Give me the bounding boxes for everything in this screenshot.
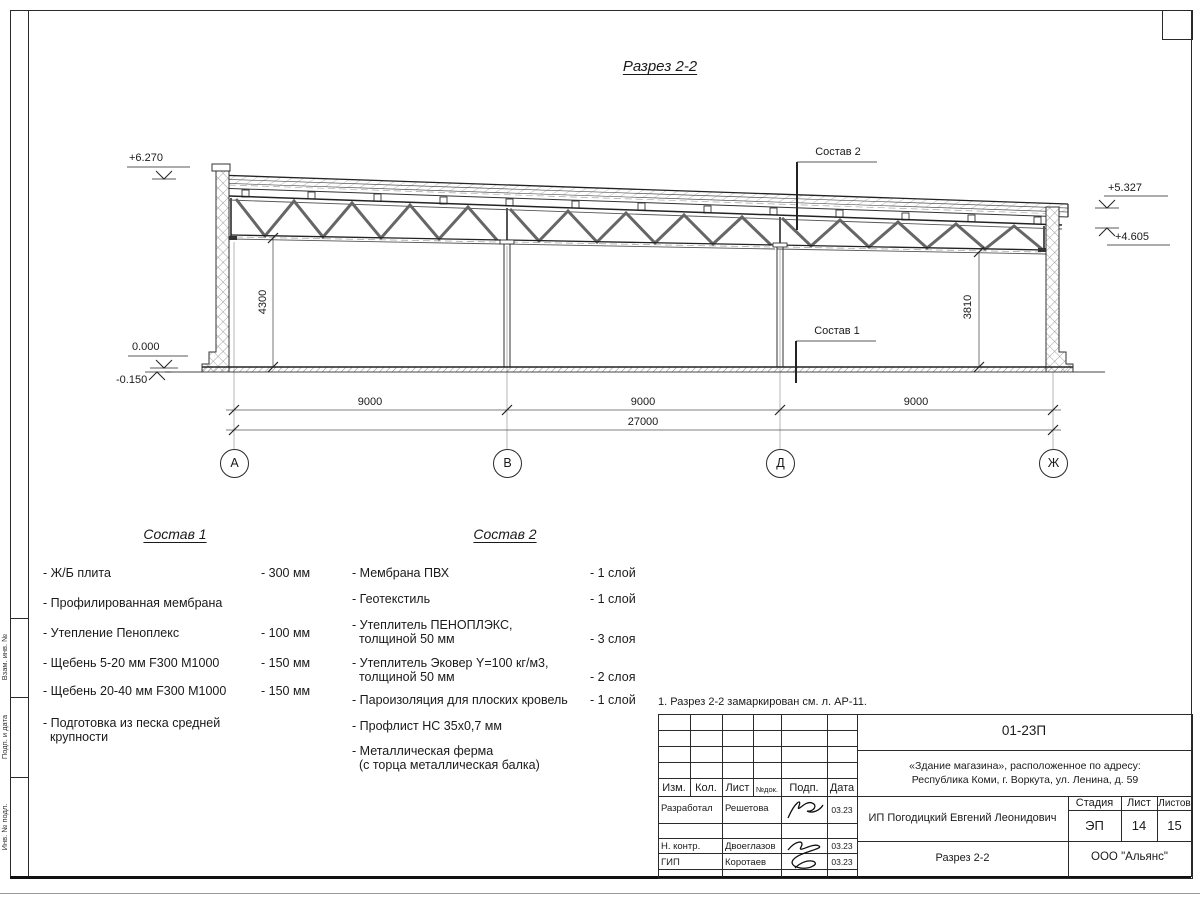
axis-bubble-d: Д xyxy=(766,449,795,478)
tb-object: «Здание магазина», расположенное по адре… xyxy=(862,759,1188,787)
tb-client: ИП Погодицкий Евгений Леонидович xyxy=(859,812,1066,824)
side-label-podp: Подп. и дата xyxy=(0,702,12,772)
frame-left-inner xyxy=(28,10,29,877)
tb-line xyxy=(658,853,857,854)
floor-slab xyxy=(165,367,1105,372)
tb-drawing-name: Разрез 2-2 xyxy=(857,852,1068,864)
side-label-inv: Инв. № подл. xyxy=(0,792,12,862)
sostav1-list: - Ж/Б плита - 300 мм - Профилированная м… xyxy=(43,566,321,744)
side-label-vzam: Взам. инв. № xyxy=(0,622,12,692)
tb-line xyxy=(1068,810,1191,811)
elevation-top-left: +6.270 xyxy=(129,152,189,166)
tb-sheets-label: Листов xyxy=(1157,798,1192,809)
axis-bubble-a: А xyxy=(220,449,249,478)
dim-span-2: 9000 xyxy=(613,396,673,410)
tb-line xyxy=(857,750,1191,751)
tb-line xyxy=(658,746,857,747)
dim-total: 27000 xyxy=(613,416,673,430)
sostav1-heading: Состав 1 xyxy=(120,526,230,544)
dim-span-1: 9000 xyxy=(340,396,400,410)
leader-label-sostav2: Состав 2 xyxy=(799,146,877,160)
list-item: - Щебень 20-40 мм F300 М1000 - 150 мм xyxy=(43,684,321,698)
side-divider xyxy=(10,618,28,619)
tb-header-izm: Изм. xyxy=(658,782,690,794)
tb-stage-label: Стадия xyxy=(1068,797,1121,809)
list-item: - Мембрана ПВХ - 1 слой xyxy=(352,566,650,580)
side-divider xyxy=(10,697,28,698)
elevation-top-right: +5.327 xyxy=(1108,182,1168,196)
tb-date-0: 03.23 xyxy=(827,805,857,815)
tb-name-3: Коротаев xyxy=(725,857,781,868)
elevation-right-lower: +4.605 xyxy=(1115,231,1175,245)
tb-line xyxy=(658,869,857,870)
tb-sheet-label: Лист xyxy=(1121,797,1157,809)
tb-line xyxy=(658,838,857,839)
dim-right-height: 3810 xyxy=(962,287,976,327)
axis-bubble-b: В xyxy=(493,449,522,478)
frame-corner-cell xyxy=(1162,10,1193,40)
tb-sheet-value: 14 xyxy=(1121,818,1157,833)
tb-header-ndok: №док. xyxy=(753,785,781,794)
elevation-below-floor: -0.150 xyxy=(116,374,171,388)
tb-line xyxy=(658,823,857,824)
list-item: - Металлическая ферма (с торца металличе… xyxy=(352,744,650,772)
sheet-note: 1. Разрез 2-2 замаркирован см. л. АР-11. xyxy=(658,696,988,710)
tb-header-data: Дата xyxy=(827,782,857,794)
dim-span-3: 9000 xyxy=(886,396,946,410)
page-title: Разрез 2-2 xyxy=(560,58,760,77)
list-item: - Профилированная мембрана xyxy=(43,596,321,610)
signature xyxy=(783,838,827,874)
tb-line xyxy=(753,714,754,796)
tb-role-3: ГИП xyxy=(661,857,721,868)
tb-name-0: Решетова xyxy=(725,803,781,814)
list-item: - Пароизоляция для плоских кровель - 1 с… xyxy=(352,693,650,707)
leader-label-sostav1: Состав 1 xyxy=(798,325,876,339)
sheet-edge xyxy=(0,893,1200,894)
sostav2-list: - Мембрана ПВХ - 1 слой - Геотекстиль - … xyxy=(352,566,650,772)
frame-top xyxy=(10,10,1191,11)
tb-header-list: Лист xyxy=(722,782,753,794)
tb-date-3: 03.23 xyxy=(827,857,857,867)
tb-header-kol: Кол. xyxy=(690,782,722,794)
list-item: - Щебень 5-20 мм F300 М1000 - 150 мм xyxy=(43,656,321,670)
tb-line xyxy=(658,778,857,779)
tb-line xyxy=(658,730,857,731)
list-item: - Профлист НС 35х0,7 мм xyxy=(352,719,650,733)
list-item: - Подготовка из песка средней крупности xyxy=(43,716,321,744)
tb-sheets-value: 15 xyxy=(1157,818,1192,833)
signature xyxy=(784,797,826,823)
tb-role-0: Разработал xyxy=(661,803,721,814)
elevation-marks xyxy=(127,167,1170,380)
dim-left-height: 4300 xyxy=(257,282,271,322)
tb-company: ООО "Альянс" xyxy=(1068,851,1191,863)
tb-name-2: Двоеглазов xyxy=(725,841,781,852)
axis-bubble-zh: Ж xyxy=(1039,449,1068,478)
list-item: - Утепление Пеноплекс - 100 мм xyxy=(43,626,321,640)
tb-stage-value: ЭП xyxy=(1068,818,1121,833)
drawing-sheet: Взам. инв. № Подп. и дата Инв. № подл. Р… xyxy=(0,0,1200,900)
tb-line xyxy=(857,841,1191,842)
tb-role-2: Н. контр. xyxy=(661,841,721,852)
tb-line xyxy=(658,762,857,763)
side-divider xyxy=(10,777,28,778)
list-item: - Утеплитель ПЕНОПЛЭКС, толщиной 50 мм -… xyxy=(352,618,650,646)
sostav2-heading: Состав 2 xyxy=(450,526,560,544)
tb-header-podp: Подп. xyxy=(781,782,827,794)
elevation-floor: 0.000 xyxy=(132,341,187,355)
columns xyxy=(500,240,787,367)
list-item: - Утеплитель Эковер Y=100 кг/м3, толщино… xyxy=(352,656,650,684)
tb-doc-number: 01-23П xyxy=(857,723,1191,738)
tb-date-2: 03.23 xyxy=(827,841,857,851)
list-item: - Ж/Б плита - 300 мм xyxy=(43,566,321,580)
list-item: - Геотекстиль - 1 слой xyxy=(352,592,650,606)
